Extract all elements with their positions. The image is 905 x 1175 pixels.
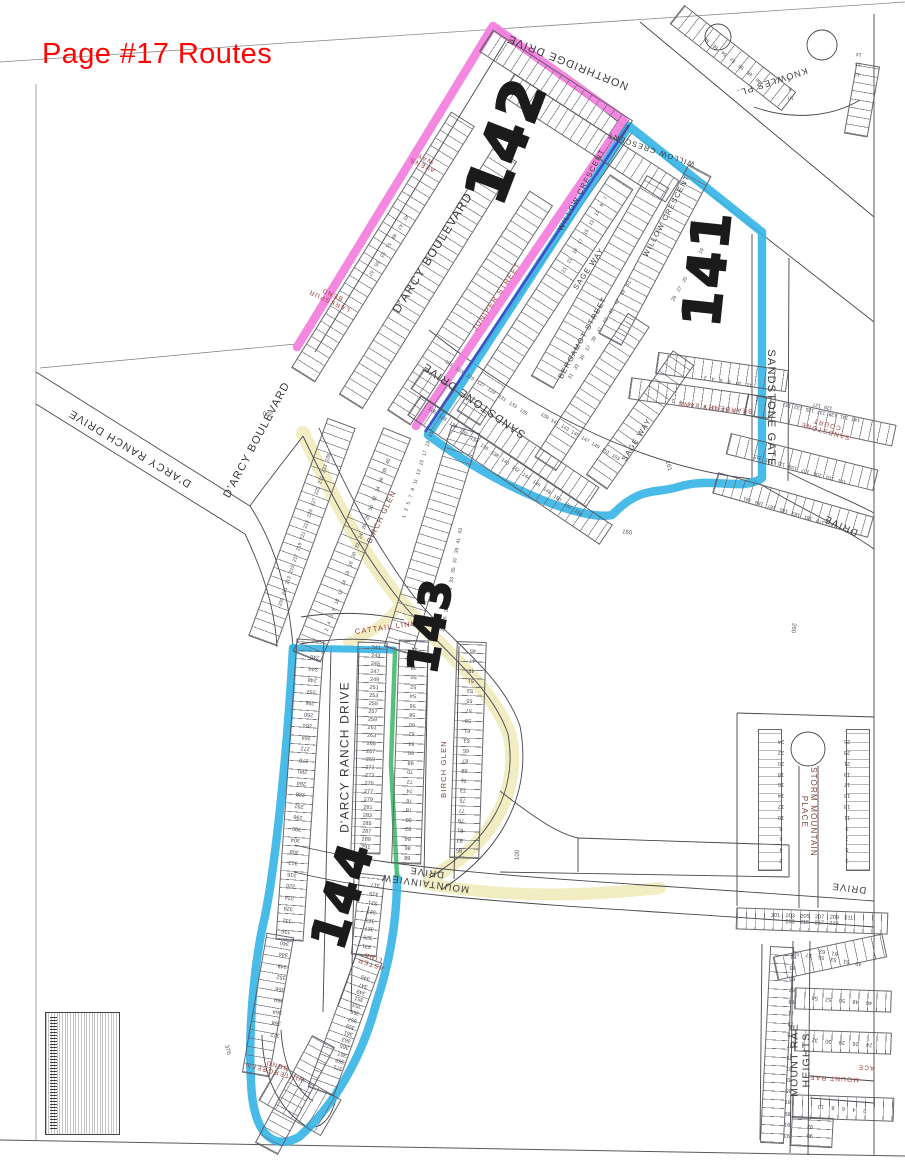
lot-numbers: 90 92 [806, 1121, 813, 1139]
field-lines [40, 344, 296, 368]
handwritten-route-number-141: 141 [672, 206, 744, 329]
page-title: Page #17 Routes [42, 38, 272, 71]
street-label-storm-mountain-place: STORM MOUNTAIN PLACE [799, 764, 817, 861]
disclaimer-box [45, 1012, 120, 1135]
lot-numbers: 2 4 6 8 10 12 14 16 18 20 22 24 [778, 735, 784, 865]
parcel-label: 260 [790, 623, 797, 634]
street-label-darcy-ranch-drive-vertical: D'ARCY RANCH DRIVE [338, 681, 351, 833]
street-label-mount-rae-heights: MOUNT RAE HEIGHTS [789, 1008, 813, 1112]
parcel-label: 100 [515, 850, 521, 860]
disclaimer-heading-lines [50, 1017, 57, 1129]
street-label-sandstone-gate: SANDSTONE GATE [765, 349, 777, 466]
street-label-mount-rae-place-fragment: ACE [857, 1063, 874, 1071]
scanned-route-map: 372 368 364 360 356 352 348 344 340 336 … [0, 0, 905, 1175]
street-label-birch-glen-lower: BIRCH GLEN [440, 740, 448, 798]
lot-numbers: 3 5 7 9 11 13 15 17 19 21 23 25 [844, 735, 850, 865]
